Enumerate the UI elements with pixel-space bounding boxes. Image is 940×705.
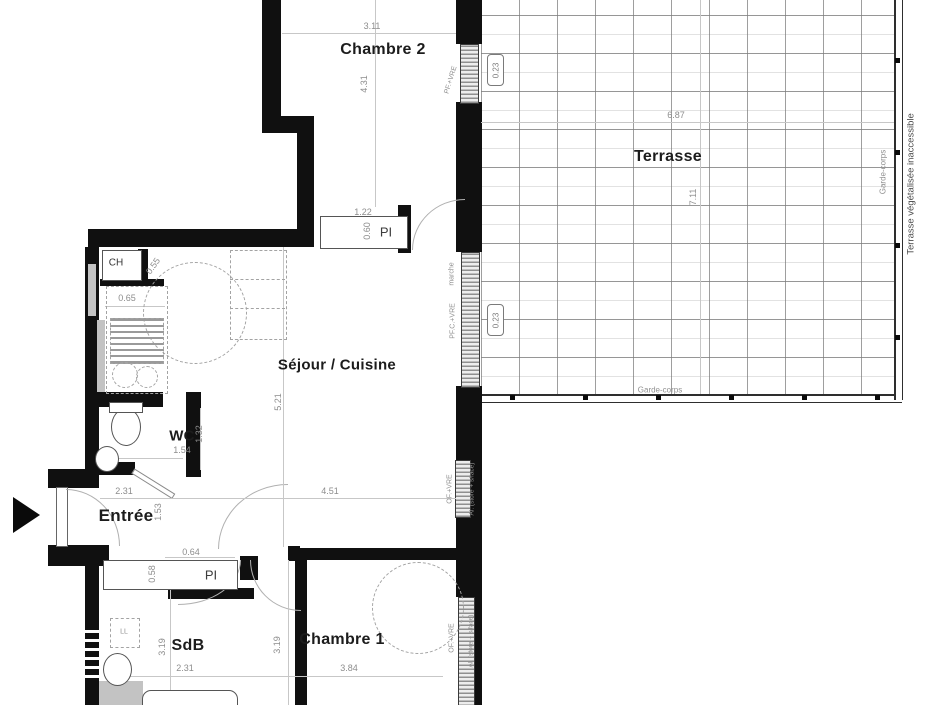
window-sejour-terrasse [461,252,480,388]
wall-chambre2-left [262,0,281,130]
rail-post [895,150,900,155]
entrance-arrow-icon [13,497,40,533]
door-arc-sejour [218,484,288,549]
washer-label: LL [120,629,128,636]
rail-post [895,335,900,340]
dimline [282,33,456,34]
rail-post [656,395,661,400]
room-label-chambre2: Chambre 2 [340,41,425,59]
room-label-wc: WC [169,428,195,445]
dim-chambre2-width: 3.11 [364,21,381,31]
room-label-terrasse: Terrasse [634,148,702,166]
hob-icon [136,366,158,388]
wc-sink-icon [95,446,119,472]
wall-central-1 [456,0,482,44]
window-chambre1-blind-label: Al. (store + s/face) [468,615,475,668]
rail-post [583,395,588,400]
dimline [288,560,289,705]
guardrail-bottom-label: Garde-corps [638,386,682,395]
dim-chambre2-height: 4.31 [359,75,369,93]
toilet-tank-icon [109,402,143,413]
guardrail-bottom [481,394,902,403]
dim-kitchen-counter: 0.65 [118,293,136,303]
window-sejour-blind-label: Al. (store + s/face) [469,463,476,516]
rail-post [895,243,900,248]
placard-entree-label: PI [205,568,217,583]
dim-terrasse-width: 6.87 [667,110,685,120]
placard-entree-box [103,560,238,590]
dim-entree-width: 2.31 [115,486,133,496]
dimline [165,557,235,558]
window-sejour-label: OF.+VRE [447,474,454,503]
dim-chambre1-height: 3.19 [272,636,282,654]
room-label-sdb: SdB [172,637,205,655]
cupboard-icon [230,250,287,340]
rail-post [802,395,807,400]
dimline [375,0,376,207]
cupboard-shelf-line [230,308,285,309]
dim-placard2-depth: 0.60 [362,222,372,240]
dimline [108,458,183,459]
terrasse-door-width-value: 0.23 [491,312,500,328]
dim-sejour-width: 4.51 [321,486,339,496]
shower-tray-icon [142,690,238,705]
room-label-entree: Entrée [99,506,154,526]
dimline [100,498,456,499]
dim-wc-height: 1.32 [194,425,204,443]
room-label-chambre1: Chambre 1 [299,631,384,649]
rail-post [729,395,734,400]
room-label-sejour: Séjour / Cuisine [278,357,396,374]
rail-post [875,395,880,400]
step-label: marche [449,262,456,285]
window-chambre1-label: OF.+VRE [449,623,456,652]
dim-wc-width: 1.54 [173,445,191,455]
window-chambre2 [460,44,479,104]
guardrail-right-label: Garde-corps [879,150,888,194]
dimline [700,0,701,394]
wall-insulation [97,320,105,398]
terrasse-note: Terrasse végétalisée inaccessible [906,113,917,255]
dim-sdb-width: 2.31 [176,663,194,673]
rail-post [510,395,515,400]
rail-post [895,58,900,63]
dim-placard-entree-depth: 0.58 [147,565,157,583]
dim-terrasse-height: 7.11 [688,189,698,206]
dim-entree-height: 1.53 [153,503,163,521]
wall-kitchen-ne [297,116,314,247]
wall-central-5 [474,597,482,705]
wall-hinge-post [288,546,300,561]
kitchen-sink-icon [110,318,164,364]
sdb-sink-icon [103,653,132,686]
dim-placard-entree-width: 0.64 [182,547,200,557]
cupboard-shelf-line [230,279,285,280]
window-sejour-terrasse-label: PF.C.+VRE [450,303,457,339]
ch-label: CH [109,258,123,269]
door-arc-chambre2 [412,199,465,250]
wall-sdb-left-hatch [85,628,99,684]
dim-sejour-height: 5.21 [273,393,283,411]
wall-central-4 [456,516,482,597]
dimline [105,676,443,677]
wall-insulation [88,264,96,316]
window-chambre2-label: PF.+VRE [443,65,458,94]
placard-chambre2-label: PI [380,225,392,240]
wall-kitchen-top [88,229,314,247]
toilet-icon [111,408,141,446]
door-arc-sdb [250,560,301,611]
door-wc [131,468,175,499]
terrasse-door-width-value: 0.23 [491,62,500,78]
dim-chambre1-width: 3.84 [340,663,358,673]
wall-central-3 [456,386,482,460]
dim-sdb-height: 3.19 [157,638,167,656]
wall-chambre1-top [297,548,457,560]
terrasse-door-width-badge: 0.23 [487,54,504,86]
dimline [481,122,894,123]
terrasse-door-width-badge: 0.23 [487,304,504,336]
floor-plan: 0.23 0.23 Chambre 2 Terrasse Séjour / Cu… [0,0,940,705]
hob-icon [112,362,138,388]
dim-placard2-width: 1.22 [354,207,372,217]
wall-entry-bottom [48,545,109,566]
